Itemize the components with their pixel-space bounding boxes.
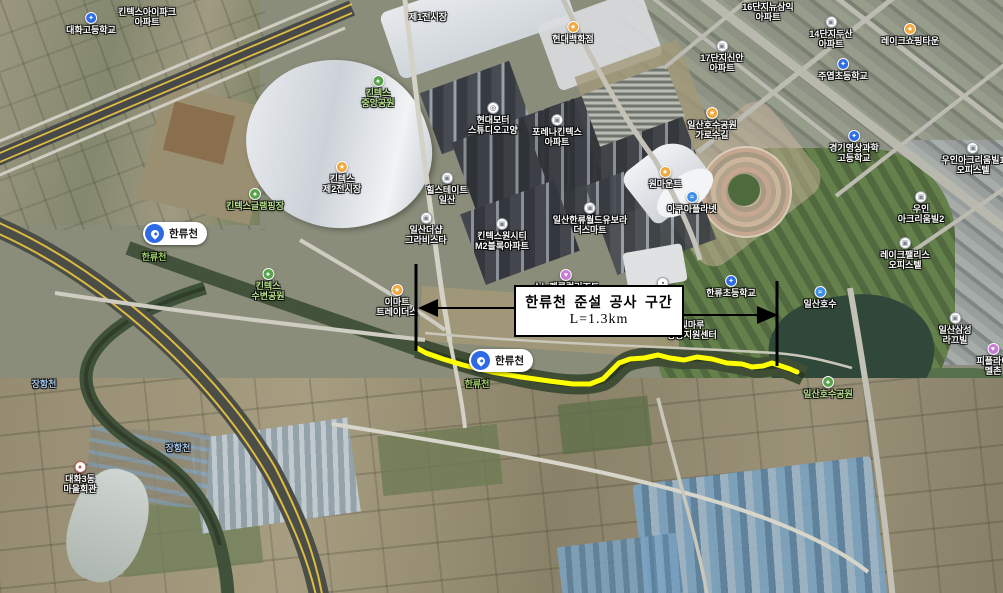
construction-section-title: 한류천 준설 공사 구간 (525, 295, 672, 312)
arrowhead-right-icon (757, 306, 778, 324)
location-pin-icon (145, 224, 164, 243)
arrowhead-left-icon (418, 299, 438, 317)
construction-info-box: 한류천 준설 공사 구간 L=1.3km (514, 285, 684, 337)
marker-label: 한류천 (495, 353, 524, 368)
construction-length: L=1.3km (570, 312, 629, 328)
stream-search-marker[interactable]: 한류천 (143, 222, 207, 245)
stream-search-marker[interactable]: 한류천 (469, 349, 533, 372)
satellite-map-viewport[interactable]: ✦대화고등학교킨텍스아이파크아파트제1전시장★현대백화점16단지뉴삼익아파트▣1… (0, 0, 1003, 593)
location-pin-icon (471, 351, 490, 370)
marker-label: 한류천 (169, 226, 198, 241)
annotation-overlay (0, 0, 1003, 593)
